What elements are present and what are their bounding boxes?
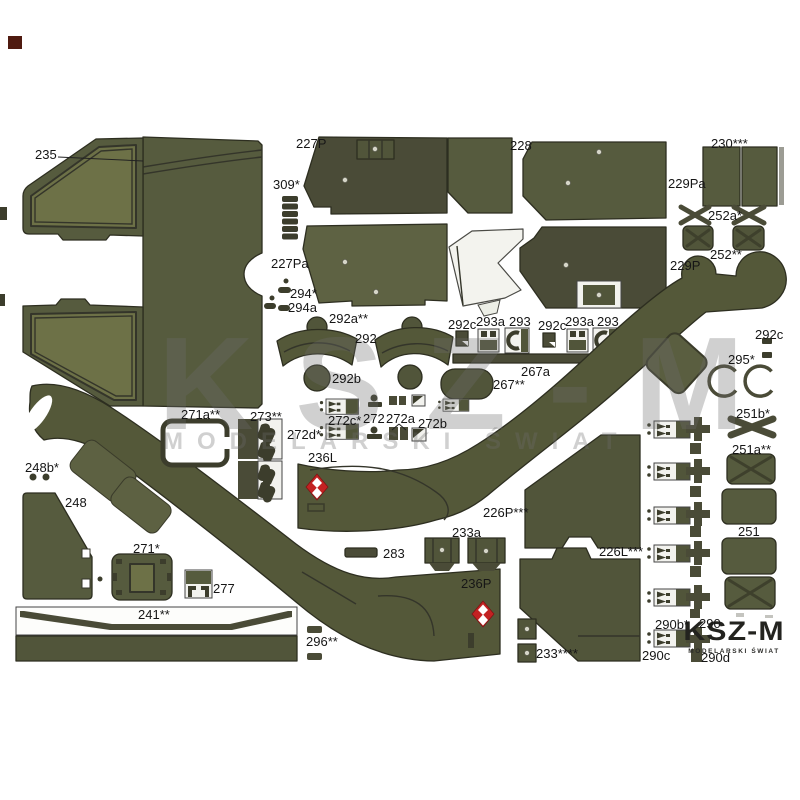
model-parts-sheet: KSZ-M MODELARSKI ŚWIAT 235227P309*227Pa2… [0, 0, 800, 800]
part-label-228: 228 [510, 138, 532, 153]
part-233a [425, 538, 505, 571]
part-label-233****: 233**** [536, 646, 578, 661]
part-267 [441, 369, 493, 399]
part-273 [238, 419, 282, 502]
part-283 [345, 548, 377, 557]
part-label-230***: 230*** [711, 136, 748, 151]
part-label-272a: 272a [386, 411, 415, 426]
part-label-292b: 292b [332, 371, 361, 386]
part-229P [520, 227, 666, 308]
part-label-226P***: 226P*** [483, 505, 529, 520]
part-label-252a*: 252a* [708, 208, 742, 223]
parts-artwork [0, 0, 800, 800]
part-229Pa [523, 142, 666, 220]
part-label-272: 272 [363, 411, 385, 426]
part-235 [23, 137, 262, 408]
part-label-236L: 236L [308, 450, 337, 465]
part-label-248: 248 [65, 495, 87, 510]
part-label-272b: 272b [418, 416, 447, 431]
part-label-251b*: 251b* [736, 406, 770, 421]
part-294 [264, 279, 291, 312]
part-227Pa [303, 224, 447, 306]
part-label-241**: 241** [138, 607, 170, 622]
part-label-292c: 292c [538, 318, 566, 333]
part-label-229Pa: 229Pa [668, 176, 706, 191]
part-292b-circles [304, 365, 422, 391]
publisher-logo-subtitle: MODELARSKI ŚWIAT [676, 648, 792, 655]
part-272c [320, 399, 359, 414]
part-label-293: 293 [597, 314, 619, 329]
part-label-273**: 273** [250, 409, 282, 424]
part-226L [520, 548, 640, 661]
part-label-277: 277 [213, 581, 235, 596]
part-label-267a: 267a [521, 364, 550, 379]
part-label-292: 292 [355, 331, 377, 346]
part-label-252**: 252** [710, 247, 742, 262]
part-label-293a: 293a [476, 314, 505, 329]
part-248 [23, 493, 103, 599]
part-label-226L***: 226L*** [599, 544, 643, 559]
part-277 [185, 570, 212, 598]
part-label-294*: 294* [290, 286, 317, 301]
corner-registration-mark [8, 36, 22, 49]
part-228 [448, 138, 512, 213]
part-label-283: 283 [383, 546, 405, 561]
part-label-235: 235 [35, 147, 57, 162]
part-label-294a: 294a [288, 300, 317, 315]
part-label-271*: 271* [133, 541, 160, 556]
publisher-logo: KSZ-M MODELARSKI ŚWIAT [676, 616, 792, 655]
part-label-248b*: 248b* [25, 460, 59, 475]
part-label-272d*: 272d* [287, 427, 321, 442]
part-251b [731, 419, 773, 435]
part-271 [112, 554, 172, 600]
part-label-292a**: 292a** [329, 311, 368, 326]
assembly-diagram-shape [449, 229, 523, 316]
part-271a [163, 421, 230, 465]
part-label-267**: 267** [493, 377, 525, 392]
part-label-229P: 229P [670, 258, 700, 273]
part-label-295*: 295* [728, 352, 755, 367]
part-label-292c: 292c [755, 327, 783, 342]
sheet-edge-marks [0, 207, 7, 306]
part-label-290b*: 290b* [655, 617, 689, 632]
part-label-296**: 296** [306, 634, 338, 649]
part-label-309*: 309* [273, 177, 300, 192]
part-295-rings [709, 366, 772, 396]
part-label-227Pa: 227Pa [271, 256, 309, 271]
part-label-251: 251 [738, 524, 760, 539]
part-293a [478, 329, 588, 352]
part-label-290: 290 [699, 616, 721, 631]
part-label-233a: 233a [452, 525, 481, 540]
part-label-251a**: 251a** [732, 442, 771, 457]
part-label-293a: 293a [565, 314, 594, 329]
part-309 [282, 196, 298, 240]
part-label-292c: 292c [448, 317, 476, 332]
part-label-290d: 290d [701, 650, 730, 665]
part-label-293: 293 [509, 314, 531, 329]
part-230 [703, 147, 784, 206]
part-label-227P: 227P [296, 136, 326, 151]
part-label-236P: 236P [461, 576, 491, 591]
part-label-271a**: 271a** [181, 407, 220, 422]
part-233 [518, 619, 536, 662]
part-label-272c*: 272c* [328, 413, 361, 428]
part-label-290c: 290c [642, 648, 670, 663]
